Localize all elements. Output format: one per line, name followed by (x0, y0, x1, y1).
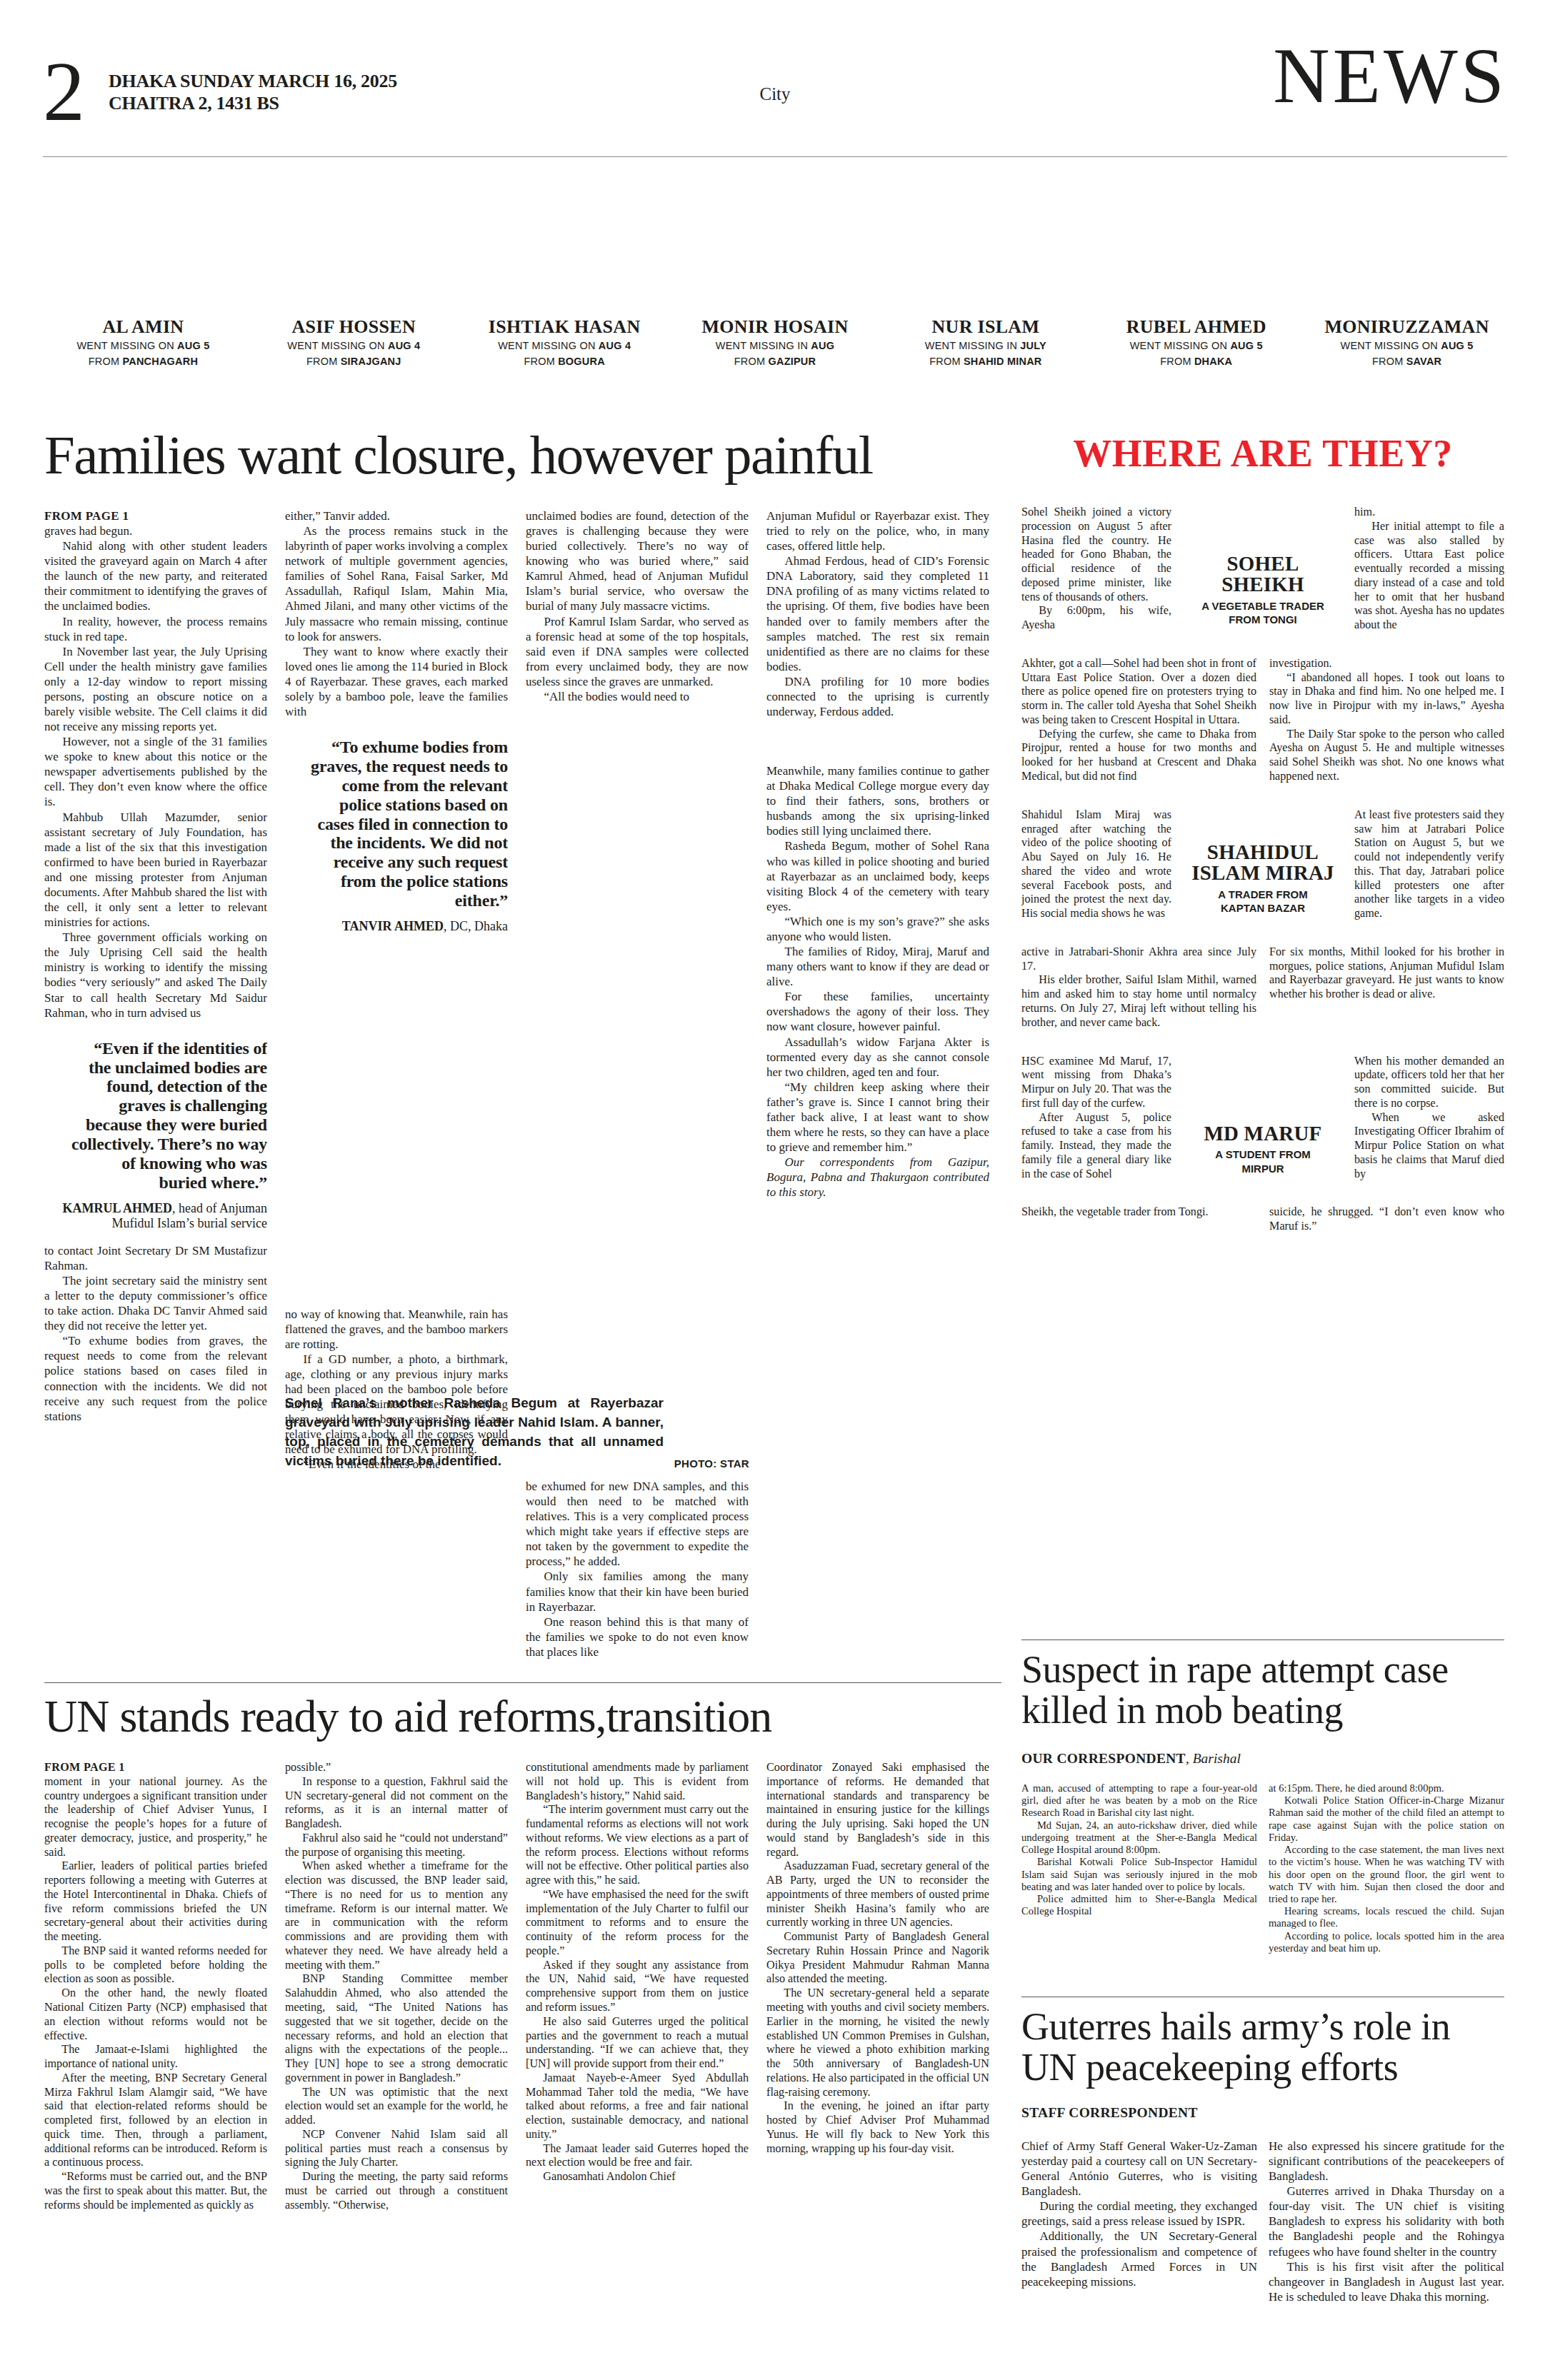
paragraph: him. (1354, 506, 1504, 520)
missing-from-prefix: FROM (929, 356, 964, 367)
missing-when-prefix: WENT MISSING ON (1130, 340, 1231, 351)
paragraph: Rasheda Begum, mother of Sohel Rana who … (766, 838, 989, 913)
missing-from: FROM SHAHID MINAR (886, 355, 1084, 368)
paragraph: However, not a single of the 31 families… (44, 734, 267, 809)
profile-role-line2: MIRPUR (1241, 1163, 1284, 1175)
missing-from-place: SIRAJGANJ (341, 356, 401, 367)
paragraph: In the evening, he joined an iftar party… (766, 2099, 989, 2156)
un-col-3: constitutional amendments made by parlia… (526, 1761, 749, 2379)
paragraph: The UN was optimistic that the next elec… (285, 2086, 508, 2128)
un-article-rule (44, 1682, 1001, 1683)
missing-when-date: AUG 4 (599, 340, 631, 351)
paragraph: NCP Convener Nahid Islam said all politi… (285, 2128, 508, 2170)
missing-strip: AL AMIN WENT MISSING ON AUG 5 FROM PANCH… (44, 166, 1506, 368)
missing-name: MONIR HOSAIN (676, 317, 874, 336)
missing-from-place: GAZIPUR (769, 356, 816, 367)
missing-card: MONIRUZZAMAN WENT MISSING ON AUG 5 FROM … (1308, 166, 1506, 368)
paragraph: Assadullah’s widow Farjana Akter is torm… (766, 1035, 989, 1080)
paragraph: When his mother demanded an update, offi… (1354, 1055, 1504, 1111)
missing-when: WENT MISSING ON AUG 5 (1097, 339, 1295, 352)
rape-col-1: A man, accused of attempting to rape a f… (1021, 1782, 1257, 1991)
families-col3-paragraphs: unclaimed bodies are found, detection of… (526, 508, 749, 704)
paragraph: Guterres arrived in Dhaka Thursday on a … (1269, 2184, 1504, 2259)
paragraph: suicide, he shrugged. “I don’t even know… (1269, 1205, 1504, 1234)
missing-photo-slot (1308, 166, 1506, 317)
missing-photo-slot (886, 166, 1084, 317)
profile-right-text: When his mother demanded an update, offi… (1354, 1055, 1504, 1182)
paragraph: Coordinator Zonayed Saki emphasised the … (766, 1761, 989, 1859)
paragraph: DNA profiling for 10 more bodies connect… (766, 674, 989, 719)
contributors-note: Our correspondents from Gazipur, Bogura,… (766, 1155, 989, 1200)
paragraph: “The interim government must carry out t… (526, 1803, 749, 1888)
pull-quote-name: KAMRUL AHMED (63, 1201, 173, 1215)
profile-role-line2: FROM TONGI (1229, 613, 1297, 626)
missing-when-prefix: WENT MISSING ON (1341, 340, 1441, 351)
families-col4-paragraphs: Anjuman Mufidul or Rayerbazar exist. The… (766, 508, 989, 719)
profile-role-line1: A TRADER FROM (1218, 888, 1307, 900)
profile-right-text: At least five protesters said they saw h… (1354, 808, 1504, 921)
paragraph: During the cordial meeting, they exchang… (1021, 2199, 1257, 2229)
rape-col2-paragraphs: at 6:15pm. There, he died around 8:00pm.… (1269, 1782, 1504, 1954)
missing-when-prefix: WENT MISSING IN (925, 340, 1020, 351)
missing-from: FROM BOGURA (466, 355, 664, 368)
paragraph: The Jamaat-e-Islami highlighted the impo… (44, 2043, 267, 2072)
families-col1-paragraphs: graves had begun.Nahid along with other … (44, 523, 267, 1020)
missing-when: WENT MISSING ON AUG 4 (255, 339, 453, 352)
profile-role-line1: A VEGETABLE TRADER (1201, 600, 1324, 612)
paragraph: graves had begun. (44, 523, 267, 538)
paragraph: BNP Standing Committee member Salahuddin… (285, 1972, 508, 2085)
paragraph: His elder brother, Saiful Islam Mithil, … (1021, 973, 1256, 1030)
paragraph: As the process remains stuck in the laby… (285, 523, 508, 644)
rape-headline: Suspect in rape attempt case killed in m… (1021, 1650, 1504, 1730)
missing-from-prefix: FROM (1372, 356, 1406, 367)
paragraph: at 6:15pm. There, he died around 8:00pm. (1269, 1782, 1504, 1794)
paragraph: Three government officials working on th… (44, 930, 267, 1020)
paragraph: A man, accused of attempting to rape a f… (1021, 1782, 1257, 1819)
families-col-4: Anjuman Mufidul or Rayerbazar exist. The… (766, 508, 989, 1689)
profile-left-text: Shahidul Islam Miraj was enraged after w… (1021, 808, 1171, 921)
guterres-col2-paragraphs: He also expressed his sincere gratitude … (1269, 2139, 1504, 2304)
missing-name: ISHTIAK HASAN (466, 317, 664, 336)
pull-quote-name: TANVIR AHMED (342, 919, 444, 933)
un-col-4: Coordinator Zonayed Saki emphasised the … (766, 1761, 989, 2379)
missing-when-date: AUG 5 (1230, 340, 1262, 351)
paragraph: “I abandoned all hopes. I took out loans… (1269, 671, 1504, 728)
un-col3-paragraphs: constitutional amendments made by parlia… (526, 1761, 749, 2184)
profile-cont-right: investigation.“I abandoned all hopes. I … (1269, 657, 1504, 784)
missing-card: ASIF HOSSEN WENT MISSING ON AUG 4 FROM S… (255, 166, 453, 368)
photo-credit: PHOTO: STAR (674, 1457, 749, 1470)
profile-cont-sohel: Akhter, got a call—Sohel had been shot i… (1021, 657, 1504, 784)
profile-role: A VEGETABLE TRADERFROM TONGI (1184, 599, 1341, 627)
profile-cont-right: For six months, Mithil looked for his br… (1269, 945, 1504, 1030)
missing-from-prefix: FROM (1160, 356, 1194, 367)
guterres-byline: STAFF CORRESPONDENT (1021, 2105, 1198, 2121)
paragraph: Meanwhile, many families continue to gat… (766, 763, 989, 838)
byline-label: OUR CORRESPONDENT (1021, 1751, 1186, 1766)
missing-from-place: BOGURA (558, 356, 605, 367)
paragraph: moment in your national journey. As the … (44, 1775, 267, 1860)
profile-card-miraj: Shahidul Islam Miraj was enraged after w… (1021, 808, 1504, 921)
paragraph: HSC examinee Md Maruf, 17, went missing … (1021, 1055, 1171, 1111)
paragraph: They want to know where exactly their lo… (285, 644, 508, 719)
paragraph: Police admitted him to Sher-e-Bangla Med… (1021, 1893, 1257, 1917)
profile-photo-slot: SHAHIDUL ISLAM MIRAJ A TRADER FROMKAPTAN… (1184, 808, 1341, 921)
paragraph: Only six families among the many familie… (526, 1569, 749, 1614)
pull-quote-desc: , DC, Dhaka (444, 919, 508, 933)
missing-card: RUBEL AHMED WENT MISSING ON AUG 5 FROM D… (1097, 166, 1295, 368)
paragraph: The Jamaat leader said Guterres hoped th… (526, 2142, 749, 2171)
missing-from: FROM GAZIPUR (676, 355, 874, 368)
guterres-article-rule (1021, 1997, 1504, 1997)
guterres-col1-paragraphs: Chief of Army Staff General Waker-Uz-Zam… (1021, 2139, 1257, 2289)
missing-name: ASIF HOSSEN (255, 317, 453, 336)
missing-when-date: AUG 4 (388, 340, 420, 351)
paragraph: In reality, however, the process remains… (44, 614, 267, 644)
paragraph: Prof Kamrul Islam Sardar, who served as … (526, 614, 749, 689)
missing-when-date: JULY (1020, 340, 1046, 351)
photo-gap (526, 704, 749, 1479)
paragraph: In response to a question, Fakhrul said … (285, 1775, 508, 1832)
pull-quote-tanvir: “To exhume bodies from graves, the reque… (285, 738, 508, 910)
profile-right-text: him.Her initial attempt to file a case w… (1354, 506, 1504, 633)
paragraph: Additionally, the UN Secretary-General p… (1021, 2229, 1257, 2289)
missing-from-place: SAVAR (1406, 356, 1442, 367)
profile-cont-left: Sheikh, the vegetable trader from Tongi. (1021, 1205, 1256, 1234)
missing-photo-slot (44, 166, 242, 317)
paragraph: Earlier, leaders of political parties br… (44, 1859, 267, 1944)
paragraph: Sheikh, the vegetable trader from Tongi. (1021, 1205, 1256, 1220)
missing-from: FROM SAVAR (1308, 355, 1506, 368)
missing-when-prefix: WENT MISSING IN (716, 340, 811, 351)
paragraph: For these families, uncertainty overshad… (766, 989, 989, 1034)
paragraph: either,” Tanvir added. (285, 508, 508, 523)
profile-left-text: Sohel Sheikh joined a victory procession… (1021, 506, 1171, 633)
paragraph: Chief of Army Staff General Waker-Uz-Zam… (1021, 2139, 1257, 2199)
missing-photo-slot (255, 166, 453, 317)
paragraph: The BNP said it wanted reforms needed fo… (44, 1944, 267, 1987)
missing-photo-slot (1097, 166, 1295, 317)
section-gap (766, 719, 989, 763)
profile-role-line2: KAPTAN BAZAR (1221, 902, 1305, 914)
paragraph: “To exhume bodies from graves, the reque… (44, 1333, 267, 1423)
profile-name: SOHEL SHEIKH (1184, 553, 1341, 596)
paragraph: Anjuman Mufidul or Rayerbazar exist. The… (766, 508, 989, 553)
paragraph: At least five protesters said they saw h… (1354, 808, 1504, 921)
paragraph: Shahidul Islam Miraj was enraged after w… (1021, 808, 1171, 921)
paragraph: Ganosamhati Andolon Chief (526, 2170, 749, 2184)
families-headline: Families want closure, however painful (44, 428, 1016, 482)
paragraph: “Reforms must be carried out, and the BN… (44, 2170, 267, 2212)
families-col1-paragraphs-cont: to contact Joint Secretary Dr SM Mustafi… (44, 1243, 267, 1424)
paragraph: “Which one is my son’s grave?” she asks … (766, 914, 989, 944)
paragraph: constitutional amendments made by parlia… (526, 1761, 749, 1803)
profile-photo-slot: SOHEL SHEIKH A VEGETABLE TRADERFROM TONG… (1184, 506, 1341, 633)
paragraph: When asked whether a timeframe for the e… (285, 1859, 508, 1972)
where-panel: WHERE ARE THEY? Sohel Sheikh joined a vi… (1021, 434, 1504, 1638)
guterres-col-1: Chief of Army Staff General Waker-Uz-Zam… (1021, 2139, 1257, 2380)
missing-when-prefix: WENT MISSING ON (287, 340, 388, 351)
missing-name: RUBEL AHMED (1097, 317, 1295, 336)
families-col-2: either,” Tanvir added.As the process rem… (285, 508, 508, 1689)
header-rule (43, 156, 1507, 157)
missing-from-place: PANCHAGARH (122, 356, 198, 367)
families-col-3: unclaimed bodies are found, detection of… (526, 508, 749, 1689)
paragraph: Defying the curfew, she came to Dhaka fr… (1021, 728, 1256, 784)
kicker: FROM PAGE 1 (44, 1761, 267, 1775)
paragraph: to contact Joint Secretary Dr SM Mustafi… (44, 1243, 267, 1273)
profile-role: A TRADER FROMKAPTAN BAZAR (1184, 888, 1341, 915)
guterres-col-2: He also expressed his sincere gratitude … (1269, 2139, 1504, 2380)
byline-label: STAFF CORRESPONDENT (1021, 2105, 1198, 2120)
paragraph: Communist Party of Bangladesh General Se… (766, 1930, 989, 1987)
missing-when: WENT MISSING IN AUG (676, 339, 874, 352)
un-headline: UN stands ready to aid reforms,transitio… (44, 1694, 1016, 1739)
families-col4-paragraphs-cont: Meanwhile, many families continue to gat… (766, 763, 989, 1155)
missing-from-place: DHAKA (1194, 356, 1232, 367)
paragraph: Akhter, got a call—Sohel had been shot i… (1021, 657, 1256, 728)
missing-when-prefix: WENT MISSING ON (498, 340, 599, 351)
rape-col1-paragraphs: A man, accused of attempting to rape a f… (1021, 1782, 1257, 1917)
missing-when-prefix: WENT MISSING ON (76, 340, 177, 351)
paragraph: On the other hand, the newly floated Nat… (44, 1987, 267, 2043)
missing-card: NUR ISLAM WENT MISSING IN JULY FROM SHAH… (886, 166, 1084, 368)
profile-cont-miraj: active in Jatrabari-Shonir Akhra area si… (1021, 945, 1504, 1030)
families-col-1: FROM PAGE 1 graves had begun.Nahid along… (44, 508, 267, 1689)
masthead: NEWS (1273, 43, 1507, 110)
missing-name: AL AMIN (44, 317, 242, 336)
photo-gap (285, 946, 508, 1307)
missing-when-date: AUG (811, 340, 834, 351)
missing-when: WENT MISSING ON AUG 5 (44, 339, 242, 352)
missing-from-place: SHAHID MINAR (964, 356, 1042, 367)
paragraph: This is his first visit after the politi… (1269, 2259, 1504, 2304)
paragraph: unclaimed bodies are found, detection of… (526, 508, 749, 614)
missing-when: WENT MISSING ON AUG 5 (1308, 339, 1506, 352)
pull-quote-attrib: KAMRUL AHMED, head of Anjuman Mufidul Is… (44, 1201, 267, 1232)
paragraph: no way of knowing that. Meanwhile, rain … (285, 1307, 508, 1352)
missing-photo-slot (466, 166, 664, 317)
missing-card: ISHTIAK HASAN WENT MISSING ON AUG 4 FROM… (466, 166, 664, 368)
paragraph: The joint secretary said the ministry se… (44, 1273, 267, 1333)
un-col2-paragraphs: possible.”In response to a question, Fak… (285, 1761, 508, 2213)
where-panel-title: WHERE ARE THEY? (1021, 434, 1504, 473)
paragraph: “My children keep asking where their fat… (766, 1080, 989, 1155)
missing-from: FROM PANCHAGARH (44, 355, 242, 368)
families-col3-paragraphs-cont: be exhumed for new DNA samples, and this… (526, 1479, 749, 1660)
paragraph: The UN secretary-general held a separate… (766, 1987, 989, 2099)
missing-from: FROM DHAKA (1097, 355, 1295, 368)
paragraph: When we asked Investigating Officer Ibra… (1354, 1111, 1504, 1182)
profile-cont-right: suicide, he shrugged. “I don’t even know… (1269, 1205, 1504, 1234)
guterres-headline: Guterres hails army’s role in UN peaceke… (1021, 2007, 1504, 2087)
paragraph: Ahmad Ferdous, head of CID’s Forensic DN… (766, 553, 989, 674)
paragraph: “We have emphasised the need for the swi… (526, 1888, 749, 1959)
profile-cont-maruf: Sheikh, the vegetable trader from Tongi.… (1021, 1205, 1504, 1234)
missing-from-prefix: FROM (734, 356, 769, 367)
paragraph: Barishal Kotwali Police Sub-Inspector Ha… (1021, 1856, 1257, 1893)
paragraph: He also said Guterres urged the politica… (526, 2015, 749, 2072)
paragraph: Fakhrul also said he “could not understa… (285, 1832, 508, 1860)
paragraph: In November last year, the July Uprising… (44, 644, 267, 734)
missing-card: AL AMIN WENT MISSING ON AUG 5 FROM PANCH… (44, 166, 242, 368)
profile-name: MD MARUF (1184, 1123, 1341, 1145)
paragraph: Md Sujan, 24, an auto-rickshaw driver, d… (1021, 1819, 1257, 1857)
profile-photo-slot: MD MARUF A STUDENT FROMMIRPUR (1184, 1055, 1341, 1182)
profile-name: SHAHIDUL ISLAM MIRAJ (1184, 842, 1341, 884)
paragraph: active in Jatrabari-Shonir Akhra area si… (1021, 945, 1256, 974)
paragraph: One reason behind this is that many of t… (526, 1615, 749, 1660)
missing-from-prefix: FROM (524, 356, 558, 367)
rape-article-rule (1021, 1640, 1504, 1640)
un-col-1: FROM PAGE 1 moment in your national jour… (44, 1761, 267, 2379)
paragraph: According to the case statement, the man… (1269, 1844, 1504, 1905)
missing-photo-slot (676, 166, 874, 317)
missing-name: MONIRUZZAMAN (1308, 317, 1506, 336)
paragraph: During the meeting, the party said refor… (285, 2170, 508, 2212)
profile-card-sohel: Sohel Sheikh joined a victory procession… (1021, 506, 1504, 633)
un-col-2: possible.”In response to a question, Fak… (285, 1761, 508, 2379)
profile-card-maruf: HSC examinee Md Maruf, 17, went missing … (1021, 1055, 1504, 1182)
byline-location: , Barishal (1186, 1751, 1241, 1766)
rape-col-2: at 6:15pm. There, he died around 8:00pm.… (1269, 1782, 1504, 1991)
paragraph: After August 5, police refused to take a… (1021, 1111, 1171, 1182)
paragraph: The families of Ridoy, Miraj, Maruf and … (766, 944, 989, 989)
profile-cont-left: active in Jatrabari-Shonir Akhra area si… (1021, 945, 1256, 1030)
pull-quote-attrib: TANVIR AHMED, DC, Dhaka (285, 919, 508, 935)
paragraph: For six months, Mithil looked for his br… (1269, 945, 1504, 1002)
missing-name: NUR ISLAM (886, 317, 1084, 336)
paragraph: Her initial attempt to file a case was a… (1354, 520, 1504, 633)
missing-when-date: AUG 5 (177, 340, 209, 351)
profile-role-line1: A STUDENT FROM (1215, 1148, 1311, 1160)
paragraph: After the meeting, BNP Secretary General… (44, 2072, 267, 2170)
paragraph: By 6:00pm, his wife, Ayesha (1021, 604, 1171, 633)
un-col1-paragraphs: moment in your national journey. As the … (44, 1775, 267, 2213)
missing-when-date: AUG 5 (1441, 340, 1473, 351)
paragraph: Mahbub Ullah Mazumder, senior assistant … (44, 810, 267, 930)
paragraph: Asked if they sought any assistance from… (526, 1959, 749, 2015)
missing-when: WENT MISSING IN JULY (886, 339, 1084, 352)
missing-when: WENT MISSING ON AUG 4 (466, 339, 664, 352)
profile-role: A STUDENT FROMMIRPUR (1184, 1148, 1341, 1175)
rape-byline: OUR CORRESPONDENT, Barishal (1021, 1751, 1241, 1767)
missing-from-prefix: FROM (306, 356, 341, 367)
paragraph: “All the bodies would need to (526, 689, 749, 704)
kicker: FROM PAGE 1 (44, 508, 267, 523)
profile-left-text: HSC examinee Md Maruf, 17, went missing … (1021, 1055, 1171, 1182)
paragraph: Kotwali Police Station Officer-in-Charge… (1269, 1794, 1504, 1844)
families-col2-paragraphs: either,” Tanvir added.As the process rem… (285, 508, 508, 719)
paragraph: Jamaat Nayeb-e-Ameer Syed Abdullah Moham… (526, 2072, 749, 2142)
profile-cont-left: Akhter, got a call—Sohel had been shot i… (1021, 657, 1256, 784)
missing-from: FROM SIRAJGANJ (255, 355, 453, 368)
paragraph: investigation. (1269, 657, 1504, 671)
missing-card: MONIR HOSAIN WENT MISSING IN AUG FROM GA… (676, 166, 874, 368)
paragraph: According to police, locals spotted him … (1269, 1930, 1504, 1954)
paragraph: Asaduzzaman Fuad, secretary general of t… (766, 1859, 989, 1930)
missing-from-prefix: FROM (89, 356, 123, 367)
paragraph: Sohel Sheikh joined a victory procession… (1021, 506, 1171, 604)
pull-quote-kamrul: “Even if the identities of the unclaimed… (44, 1039, 267, 1192)
newspaper-page: 2 DHAKA SUNDAY MARCH 16, 2025 CHAITRA 2,… (0, 0, 1550, 2380)
paragraph: Nahid along with other student leaders v… (44, 538, 267, 613)
paragraph: He also expressed his sincere gratitude … (1269, 2139, 1504, 2184)
un-col4-paragraphs: Coordinator Zonayed Saki emphasised the … (766, 1761, 989, 2156)
photo-caption-block: Sohel Rana’s mother Rasheda Begum at Ray… (285, 1394, 749, 1471)
paragraph: The Daily Star spoke to the person who c… (1269, 728, 1504, 784)
paragraph: be exhumed for new DNA samples, and this… (526, 1479, 749, 1569)
paragraph: Hearing screams, locals rescued the chil… (1269, 1905, 1504, 1929)
paragraph: possible.” (285, 1761, 508, 1775)
